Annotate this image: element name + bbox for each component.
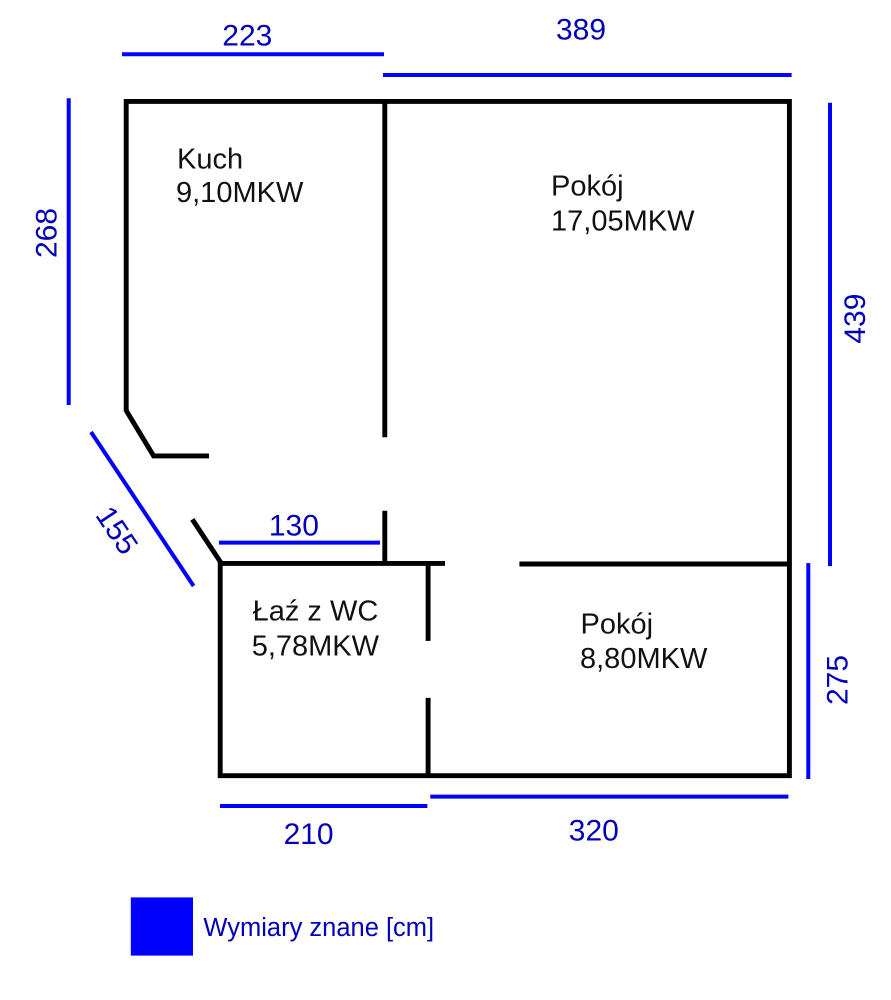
svg-text:389: 389	[556, 14, 606, 47]
svg-text:223: 223	[222, 20, 272, 53]
svg-text:8,80MKW: 8,80MKW	[580, 643, 708, 675]
svg-text:320: 320	[569, 814, 619, 847]
svg-text:Pokój: Pokój	[581, 609, 654, 641]
svg-text:17,05MKW: 17,05MKW	[551, 205, 695, 237]
svg-text:9,10MKW: 9,10MKW	[176, 177, 304, 209]
svg-text:275: 275	[822, 655, 855, 705]
svg-text:439: 439	[839, 294, 872, 344]
svg-text:210: 210	[284, 818, 334, 851]
svg-text:Pokój: Pokój	[551, 171, 624, 203]
svg-text:5,78MKW: 5,78MKW	[252, 630, 380, 662]
svg-text:Wymiary znane [cm]: Wymiary znane [cm]	[203, 914, 434, 942]
svg-text:268: 268	[31, 208, 64, 258]
svg-text:Łaź z WC: Łaź z WC	[253, 595, 379, 627]
svg-text:Kuch: Kuch	[177, 144, 243, 176]
svg-text:130: 130	[269, 510, 319, 543]
